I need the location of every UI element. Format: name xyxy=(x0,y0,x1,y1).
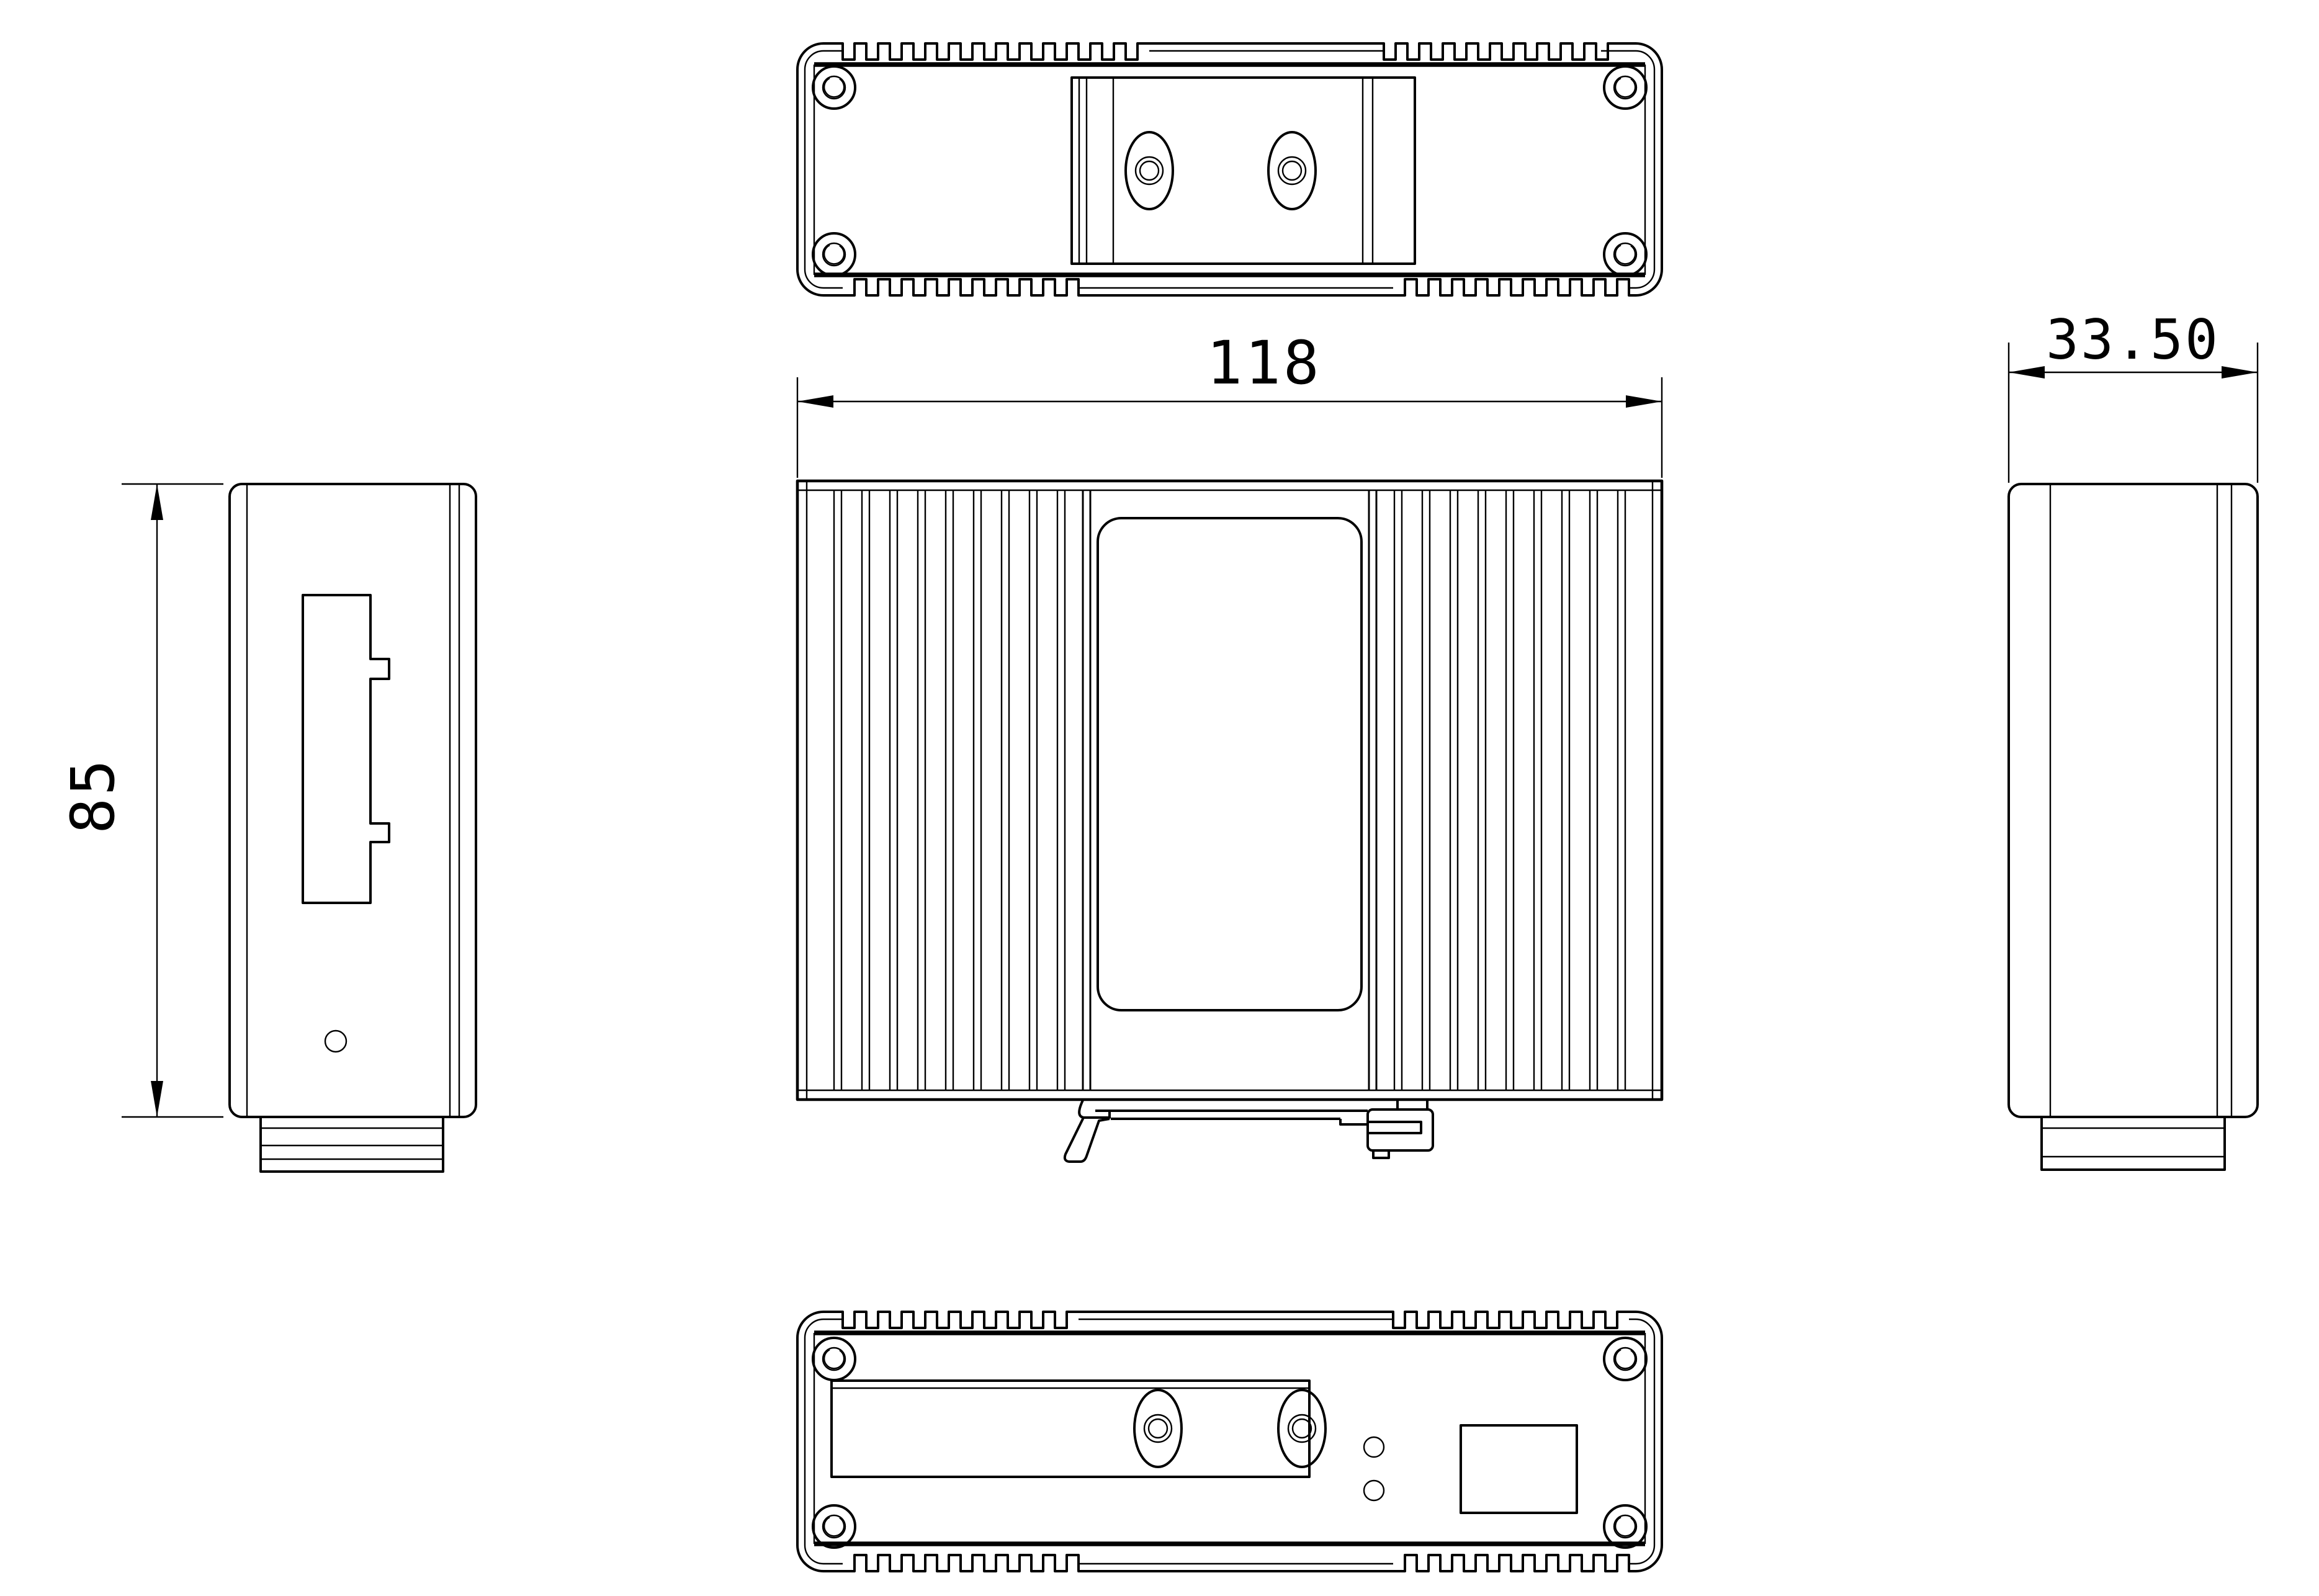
left-view-foot xyxy=(261,1117,443,1172)
right-view-outline xyxy=(2009,484,2258,1117)
bottom-view-outline xyxy=(797,1312,1662,1571)
clip-hook xyxy=(1079,1100,1110,1118)
top-view-inner-edge xyxy=(805,51,1654,288)
mount-boss xyxy=(1268,132,1316,209)
top-view-outline xyxy=(797,43,1662,295)
screw-holes-bottom-view xyxy=(813,1338,1646,1548)
mount-boss xyxy=(1126,132,1173,209)
top-view-face-edges xyxy=(814,65,1645,275)
side-hole xyxy=(325,1031,346,1052)
led-hole xyxy=(1364,1481,1384,1500)
label-recess xyxy=(1098,518,1361,1010)
dimension-width-label: 118 xyxy=(1206,328,1321,398)
mount-boss xyxy=(1278,1390,1325,1467)
dimension-height-label: 85 xyxy=(58,757,128,834)
din-rail-slot xyxy=(303,595,389,903)
clip-latch xyxy=(1368,1100,1433,1158)
mount-boss xyxy=(1134,1390,1182,1467)
dimension-depth-label: 33.50 xyxy=(2046,308,2220,372)
top-view xyxy=(797,43,1662,295)
screw-holes-top-view xyxy=(813,66,1646,276)
dimension-depth: 33.50 xyxy=(2009,308,2258,483)
bottom-view-inner-edge xyxy=(805,1319,1654,1564)
heatsink-fins-right xyxy=(1369,490,1625,1090)
right-side-view xyxy=(2009,484,2258,1170)
led-hole xyxy=(1364,1437,1384,1457)
din-mount-plate xyxy=(1072,78,1415,264)
left-side-view xyxy=(230,484,476,1172)
left-view-outline xyxy=(230,484,476,1117)
dimension-width: 118 xyxy=(797,328,1662,478)
connector-opening xyxy=(1461,1425,1577,1513)
terminal-recess xyxy=(832,1381,1325,1477)
front-view-outline xyxy=(797,481,1662,1100)
heatsink-fins-left xyxy=(834,490,1090,1090)
front-view xyxy=(797,481,1662,1162)
dimension-height: 85 xyxy=(58,484,223,1117)
drawing-sheet: 118 xyxy=(0,0,2319,1596)
din-rail-clip xyxy=(1065,1100,1433,1162)
bottom-view xyxy=(797,1312,1662,1571)
right-view-foot xyxy=(2042,1117,2225,1170)
